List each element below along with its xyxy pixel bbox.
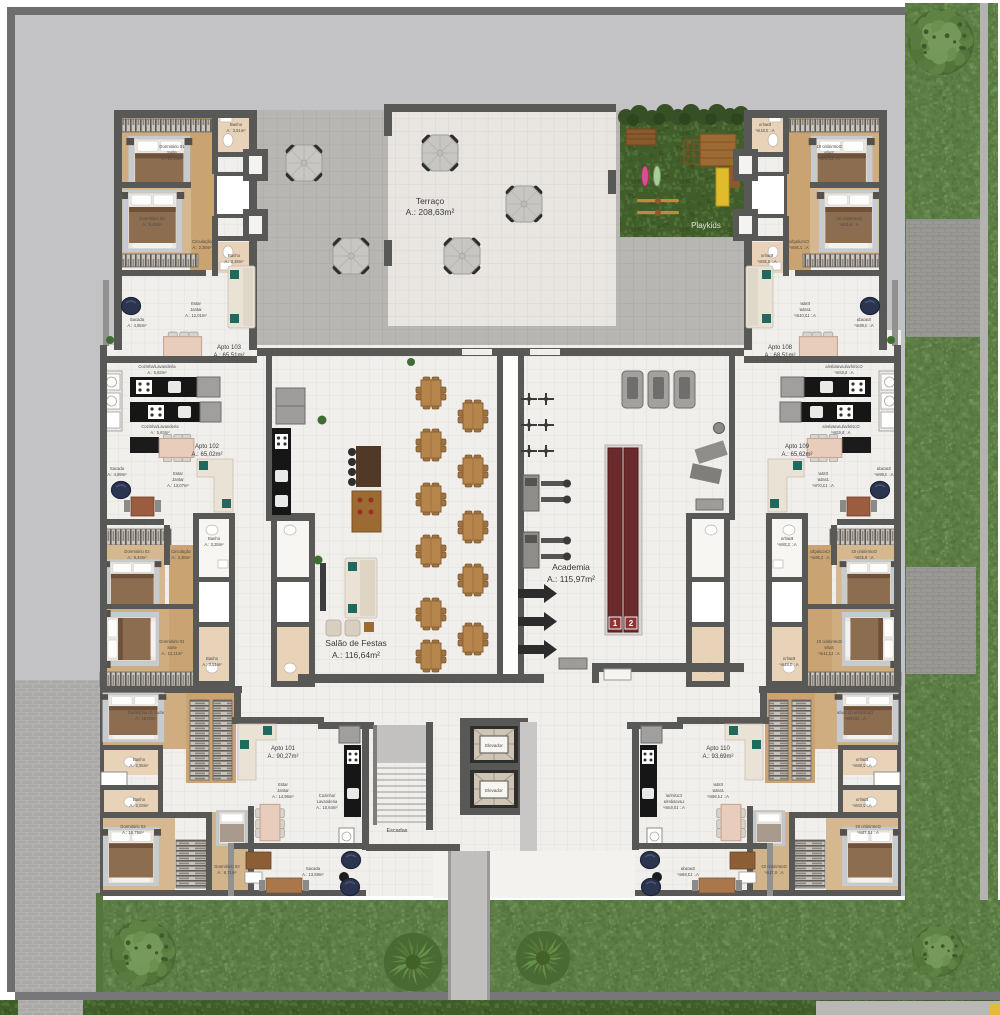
svg-text:Sacada: Sacada xyxy=(110,466,125,471)
svg-text:Apto 108: Apto 108 xyxy=(768,345,793,351)
svg-text:A.: 2,03m²: A.: 2,03m² xyxy=(129,803,149,808)
svg-text:A.: 3,51m²: A.: 3,51m² xyxy=(202,662,222,667)
svg-text:1: 1 xyxy=(613,619,618,628)
svg-text:Apto 110: Apto 110 xyxy=(706,746,730,752)
svg-text:Jantar: Jantar xyxy=(190,307,202,312)
svg-text:Terraço: Terraço xyxy=(416,196,445,206)
svg-text:Jantar: Jantar xyxy=(277,788,289,793)
svg-text:A.: 65,51m²: A.: 65,51m² xyxy=(213,353,244,359)
svg-text:A.: 13,07m²: A.: 13,07m² xyxy=(167,483,189,488)
svg-text:Circulação: Circulação xyxy=(192,239,212,244)
svg-text:Jantar: Jantar xyxy=(172,477,184,482)
svg-text:A.: 116,64m²: A.: 116,64m² xyxy=(332,650,380,660)
svg-text:A.: 3,28m²: A.: 3,28m² xyxy=(224,259,244,264)
svg-text:Dormitório 01: Dormitório 01 xyxy=(159,639,185,644)
svg-text:Cozinha/Lavanderia: Cozinha/Lavanderia xyxy=(138,364,176,369)
svg-text:Dormitório 03: Dormitório 03 xyxy=(214,864,240,869)
svg-text:Sacada: Sacada xyxy=(306,866,321,871)
svg-text:A.: 12,01m²: A.: 12,01m² xyxy=(185,313,207,318)
svg-text:Estar: Estar xyxy=(173,471,183,476)
svg-text:Sacada: Sacada xyxy=(130,317,145,322)
svg-text:Banho: Banho xyxy=(133,797,146,802)
svg-text:Estar: Estar xyxy=(191,301,201,306)
svg-text:A.: 65,62m²: A.: 65,62m² xyxy=(781,452,812,458)
svg-text:Cozinha/Lavanderia: Cozinha/Lavanderia xyxy=(141,424,179,429)
svg-text:A.: 4,89m²: A.: 4,89m² xyxy=(107,472,127,477)
svg-text:2: 2 xyxy=(629,619,634,628)
svg-text:A.: 2,55m²: A.: 2,55m² xyxy=(129,763,149,768)
svg-text:Dormitório 02: Dormitório 02 xyxy=(139,216,165,221)
svg-text:A.: 5,63m²: A.: 5,63m² xyxy=(150,430,170,435)
svg-text:A.: 14,96m²: A.: 14,96m² xyxy=(272,794,294,799)
svg-text:Suíte: Suíte xyxy=(167,645,177,650)
svg-text:A.: 12,11m²: A.: 12,11m² xyxy=(161,651,183,656)
svg-text:Estar: Estar xyxy=(278,782,288,787)
svg-text:A.: 15,04m²: A.: 15,04m² xyxy=(135,716,157,721)
svg-text:Lavanderia: Lavanderia xyxy=(317,799,338,804)
svg-text:Apto 101: Apto 101 xyxy=(271,746,296,752)
svg-text:A.: 93,69m²: A.: 93,69m² xyxy=(702,754,733,760)
svg-text:A.: 12,14m²: A.: 12,14m² xyxy=(161,156,183,161)
svg-text:Apto 103: Apto 103 xyxy=(217,345,242,351)
svg-text:A.: 9,43m²: A.: 9,43m² xyxy=(127,555,147,560)
svg-text:Circulação: Circulação xyxy=(171,549,191,554)
svg-text:Elevador: Elevador xyxy=(485,788,503,793)
svg-text:A.: 13,59m²: A.: 13,59m² xyxy=(302,872,324,877)
svg-text:Dormitório 02: Dormitório 02 xyxy=(124,549,150,554)
svg-text:A.: 2,36m²: A.: 2,36m² xyxy=(192,245,212,250)
svg-text:Suíte: Suíte xyxy=(167,150,177,155)
svg-text:Dormitório 01: Dormitório 01 xyxy=(159,144,185,149)
svg-text:Apto 102: Apto 102 xyxy=(195,444,220,450)
svg-text:A.: 208,63m²: A.: 208,63m² xyxy=(406,207,455,217)
svg-text:Dormitório 02: Dormitório 02 xyxy=(120,824,146,829)
svg-text:A.: 90,27m²: A.: 90,27m² xyxy=(267,754,298,760)
svg-text:A.: 3,28m²: A.: 3,28m² xyxy=(204,542,224,547)
svg-text:Salão de Festas: Salão de Festas xyxy=(325,638,386,648)
svg-text:A.: 10,75m²: A.: 10,75m² xyxy=(122,830,144,835)
svg-text:A.: 4,85m²: A.: 4,85m² xyxy=(127,323,147,328)
svg-text:A.: 68,51m²: A.: 68,51m² xyxy=(764,353,795,359)
svg-text:A.: 3,51m²: A.: 3,51m² xyxy=(226,128,246,133)
svg-text:A.: 2,36m²: A.: 2,36m² xyxy=(171,555,191,560)
svg-text:Banho: Banho xyxy=(133,757,146,762)
svg-text:Banho: Banho xyxy=(206,656,219,661)
svg-text:A.: 65,02m²: A.: 65,02m² xyxy=(191,452,222,458)
svg-text:Banho: Banho xyxy=(228,253,241,258)
svg-text:Apto 109: Apto 109 xyxy=(785,444,810,450)
svg-text:A.: 8,71m²: A.: 8,71m² xyxy=(217,870,237,875)
svg-text:Banho: Banho xyxy=(208,536,221,541)
svg-text:Cozinha/: Cozinha/ xyxy=(319,793,336,798)
svg-text:Escadas: Escadas xyxy=(386,828,407,834)
svg-text:Playkids: Playkids xyxy=(691,221,721,230)
svg-text:Banho: Banho xyxy=(230,122,243,127)
svg-text:A.: 5,63m²: A.: 5,63m² xyxy=(147,370,167,375)
svg-text:A.: 9,43m²: A.: 9,43m² xyxy=(142,222,162,227)
svg-text:Elevador: Elevador xyxy=(485,743,503,748)
svg-text:Academia: Academia xyxy=(552,562,590,572)
svg-text:A.: 10,64m²: A.: 10,64m² xyxy=(316,805,338,810)
svg-text:Dormitório 01 Suíte: Dormitório 01 Suíte xyxy=(128,710,165,715)
svg-text:A.: 115,97m²: A.: 115,97m² xyxy=(547,574,595,584)
